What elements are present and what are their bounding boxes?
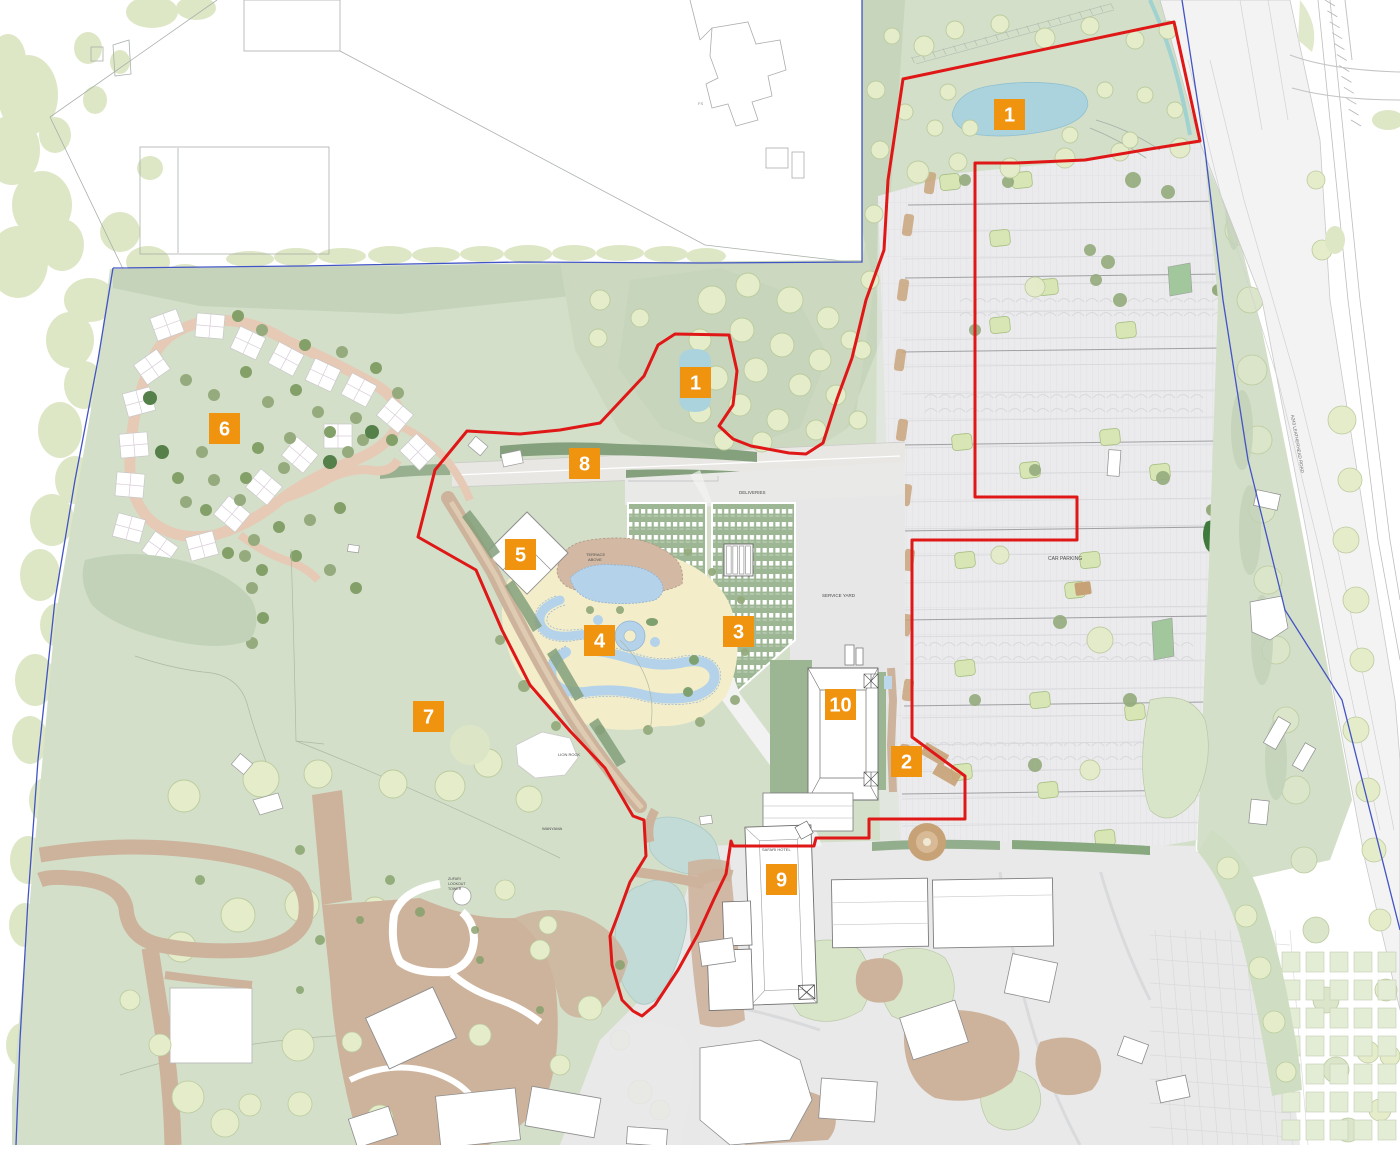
svg-text:LION ROCK: LION ROCK: [558, 752, 580, 757]
svg-text:ABOVE: ABOVE: [588, 557, 602, 562]
svg-text:6: 6: [219, 419, 230, 441]
svg-text:WANYAMA: WANYAMA: [542, 826, 563, 831]
svg-text:1: 1: [1004, 105, 1015, 127]
svg-text:FS: FS: [698, 101, 703, 106]
svg-text:7: 7: [423, 707, 434, 729]
svg-text:10: 10: [829, 695, 851, 717]
svg-text:1: 1: [690, 373, 701, 395]
svg-text:LOOKOUT: LOOKOUT: [448, 882, 466, 886]
svg-text:SERVICE YARD: SERVICE YARD: [822, 593, 856, 598]
svg-text:8: 8: [579, 454, 590, 476]
svg-text:SAFARI HOTEL: SAFARI HOTEL: [762, 847, 791, 852]
svg-text:CAR PARKING: CAR PARKING: [1048, 556, 1082, 562]
svg-text:2: 2: [901, 752, 912, 774]
svg-text:9: 9: [776, 870, 787, 892]
svg-text:3: 3: [733, 622, 744, 644]
svg-text:ZUFARI: ZUFARI: [448, 877, 461, 881]
svg-text:DELIVERIES: DELIVERIES: [739, 490, 766, 495]
svg-text:4: 4: [594, 631, 606, 653]
svg-text:5: 5: [515, 545, 526, 567]
svg-text:TOWER: TOWER: [448, 887, 462, 891]
